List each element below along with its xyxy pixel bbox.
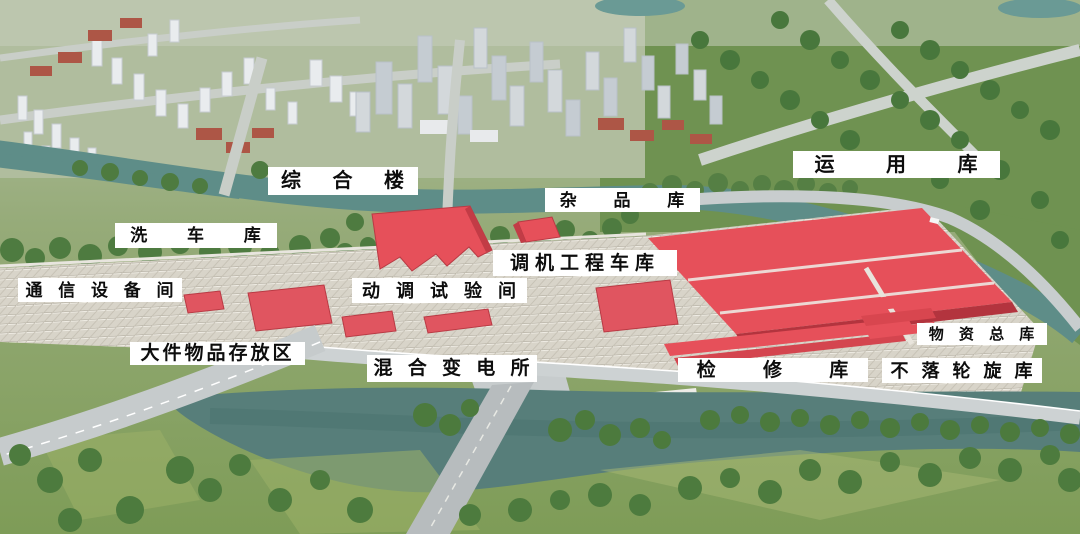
label-communication-equipment-room: 通 信 设 备 间	[18, 278, 182, 302]
label-bulky-items-storage-area: 大件物品存放区	[130, 342, 305, 365]
label-operation-depot: 运 用 库	[793, 151, 1000, 178]
label-maintenance-depot: 检 修 库	[678, 358, 868, 382]
label-shunting-engineering-vehicle-depot: 调机工程车库	[493, 250, 677, 276]
depot-aerial-rendering: 综 合 楼 运 用 库 杂 品 库 洗 车 库 调机工程车库 通 信 设 备 间…	[0, 0, 1080, 534]
label-sundries-warehouse: 杂 品 库	[545, 188, 700, 212]
label-comprehensive-building: 综 合 楼	[268, 167, 418, 195]
label-mixed-substation: 混 合 变 电 所	[367, 355, 537, 382]
label-train-wash-depot: 洗 车 库	[115, 223, 277, 248]
label-materials-main-warehouse: 物 资 总 库	[917, 323, 1047, 345]
label-underfloor-wheel-lathe-depot: 不 落 轮 旋 库	[882, 358, 1042, 383]
label-dynamic-test-room: 动 调 试 验 间	[352, 278, 527, 303]
